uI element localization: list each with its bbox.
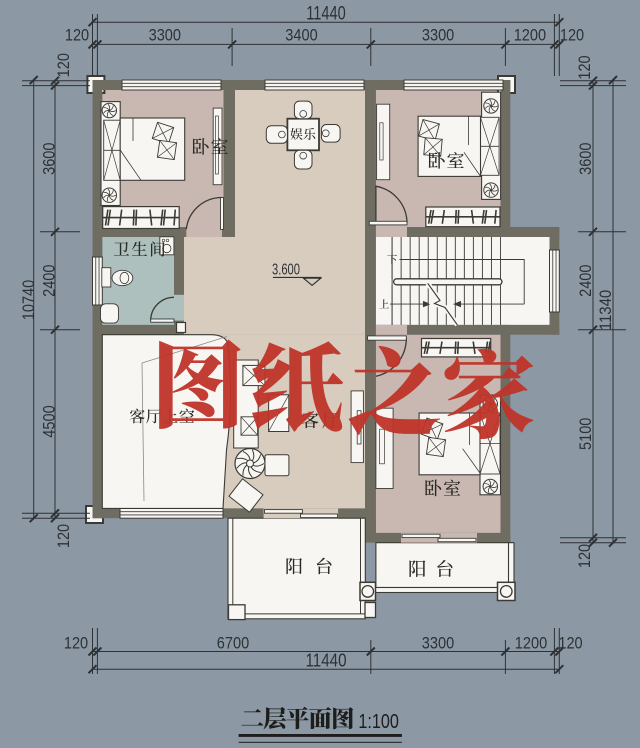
- svg-text:1200: 1200: [515, 634, 547, 653]
- svg-text:3400: 3400: [285, 25, 317, 44]
- svg-text:120: 120: [64, 634, 88, 653]
- svg-text:11440: 11440: [306, 3, 346, 25]
- svg-text:120: 120: [558, 634, 582, 653]
- svg-text:120: 120: [575, 544, 594, 568]
- svg-text:2400: 2400: [576, 265, 595, 297]
- svg-text:10740: 10740: [19, 280, 38, 321]
- svg-text:3600: 3600: [576, 142, 595, 174]
- svg-text:3.600: 3.600: [272, 262, 300, 279]
- svg-text:120: 120: [560, 25, 584, 44]
- svg-text:120: 120: [575, 55, 594, 79]
- svg-text:11440: 11440: [306, 651, 347, 671]
- svg-text:3600: 3600: [40, 143, 59, 175]
- svg-text:1:100: 1:100: [358, 711, 399, 733]
- svg-text:120: 120: [65, 25, 89, 44]
- svg-text:3300: 3300: [422, 634, 454, 653]
- svg-text:1200: 1200: [514, 25, 546, 44]
- svg-text:3300: 3300: [149, 25, 181, 44]
- svg-text:120: 120: [54, 524, 73, 548]
- svg-text:11340: 11340: [596, 290, 615, 331]
- svg-text:6700: 6700: [217, 634, 249, 653]
- svg-text:2400: 2400: [40, 265, 59, 297]
- svg-text:120: 120: [54, 53, 73, 77]
- svg-text:3300: 3300: [422, 25, 454, 44]
- svg-text:5100: 5100: [576, 418, 595, 450]
- svg-text:4500: 4500: [40, 405, 59, 437]
